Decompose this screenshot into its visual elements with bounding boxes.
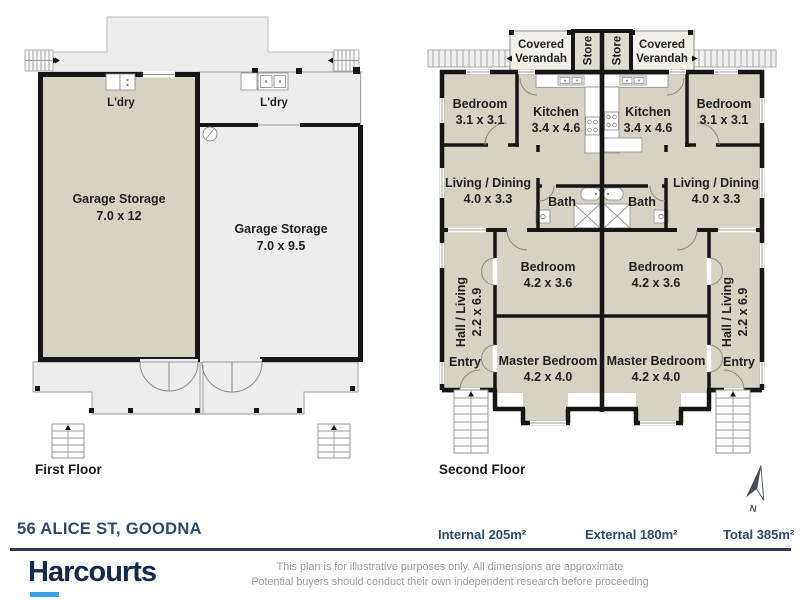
staircase-bottom-right xyxy=(318,424,350,458)
room-dims-master-right: 4.2 x 4.0 xyxy=(632,370,681,384)
awning-outline xyxy=(52,17,333,72)
room-label-kitchen-right: Kitchen xyxy=(625,105,671,119)
room-label-bedroom-front-left: Bedroom xyxy=(453,97,508,111)
harcourts-logo-underline xyxy=(30,592,59,597)
floor-plans-canvas: L'dry L'dry Garage Storage 7.0 x 12 Gara… xyxy=(0,0,800,518)
room-garage-storage-right xyxy=(198,67,363,362)
room-dims-garage-right: 7.0 x 9.5 xyxy=(257,239,306,253)
room-label-hall-left: Hall / Living xyxy=(454,277,468,347)
label-store-right: Store xyxy=(612,36,624,65)
room-dims-bedroom-mid-right: 4.2 x 3.6 xyxy=(632,276,681,290)
room-label-master-right: Master Bedroom xyxy=(607,354,706,368)
divider-rule xyxy=(10,548,791,551)
room-label-garage-left: Garage Storage xyxy=(72,192,165,206)
room-dims-living-left: 4.0 x 3.3 xyxy=(464,192,513,206)
verandah-railing-right xyxy=(694,50,776,67)
porch xyxy=(33,362,358,414)
first-floor-label: First Floor xyxy=(35,462,102,477)
area-total: Total 385m² xyxy=(723,527,794,542)
room-label-bedroom-front-right: Bedroom xyxy=(697,97,752,111)
room-label-ldry-left: L'dry xyxy=(107,97,135,109)
room-label-living-right: Living / Dining xyxy=(673,176,759,190)
disclaimer-line-2: Potential buyers should conduct their ow… xyxy=(190,575,710,590)
room-dims-garage-left: 7.0 x 12 xyxy=(96,209,141,223)
room-dims-kitchen-right: 3.4 x 4.6 xyxy=(624,121,673,135)
room-label-bath-right: Bath xyxy=(628,195,656,209)
room-dims-kitchen-left: 3.4 x 4.6 xyxy=(532,121,581,135)
room-label-master-left: Master Bedroom xyxy=(499,354,598,368)
laundry-fixtures-right xyxy=(241,73,288,90)
room-label-bedroom-mid-left: Bedroom xyxy=(521,260,576,274)
room-label-kitchen-left: Kitchen xyxy=(533,105,579,119)
disclaimer: This plan is for illustrative purposes o… xyxy=(190,560,710,589)
room-dims-bedroom-front-right: 3.1 x 3.1 xyxy=(700,113,749,127)
area-external: External 180m² xyxy=(585,527,678,542)
second-floor-plan: Covered Verandah Covered Verandah Store … xyxy=(428,29,776,516)
room-label-bath-left: Bath xyxy=(548,195,576,209)
laundry-fixtures-left xyxy=(106,74,135,90)
room-label-garage-right: Garage Storage xyxy=(234,222,327,236)
label-covered-verandah-left-1: Covered xyxy=(518,39,564,51)
property-address: 56 ALICE ST, GOODNA xyxy=(17,520,202,539)
room-dims-hall-left: 2.2 x 6.9 xyxy=(470,288,484,337)
room-dims-master-left: 4.2 x 4.0 xyxy=(524,370,573,384)
staircase-second-right xyxy=(716,390,750,453)
room-label-entry-left: Entry xyxy=(449,355,481,369)
label-covered-verandah-left-2: Verandah xyxy=(515,53,567,65)
room-dims-living-right: 4.0 x 3.3 xyxy=(692,192,741,206)
label-covered-verandah-right-1: Covered xyxy=(639,39,685,51)
disclaimer-line-1: This plan is for illustrative purposes o… xyxy=(190,560,710,575)
room-covered-verandah-left xyxy=(509,30,573,72)
room-dims-hall-right: 2.2 x 6.9 xyxy=(736,288,750,337)
north-arrow-icon: N xyxy=(743,464,769,516)
room-label-entry-right: Entry xyxy=(723,355,755,369)
staircase-second-left xyxy=(454,390,488,453)
first-floor-plan: L'dry L'dry Garage Storage 7.0 x 12 Gara… xyxy=(25,17,363,477)
room-dims-bedroom-front-left: 3.1 x 3.1 xyxy=(456,113,505,127)
room-label-ldry-right: L'dry xyxy=(260,97,288,109)
staircase-bottom-left xyxy=(52,424,84,458)
room-dims-bedroom-mid-left: 4.2 x 3.6 xyxy=(524,276,573,290)
room-label-bedroom-mid-right: Bedroom xyxy=(629,260,684,274)
floorplan-page: L'dry L'dry Garage Storage 7.0 x 12 Gara… xyxy=(0,0,800,600)
north-label: N xyxy=(749,503,758,515)
area-internal: Internal 205m² xyxy=(438,527,526,542)
label-store-left: Store xyxy=(583,36,595,65)
second-floor-label: Second Floor xyxy=(439,462,526,477)
room-covered-verandah-right xyxy=(630,30,694,72)
room-label-living-left: Living / Dining xyxy=(445,176,531,190)
harcourts-logo: Harcourts xyxy=(28,556,156,589)
label-covered-verandah-right-2: Verandah xyxy=(636,53,688,65)
verandah-railing-left xyxy=(428,50,510,67)
room-label-hall-right: Hall / Living xyxy=(720,277,734,347)
door-symbol-circle xyxy=(203,127,217,141)
